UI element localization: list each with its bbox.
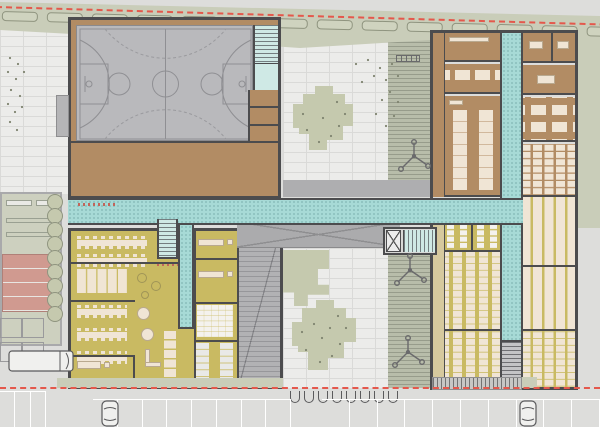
admin-desk-b — [557, 41, 569, 49]
parking-stall — [405, 400, 433, 427]
admin-room-1-divider — [551, 33, 553, 63]
planting-cluster-east — [346, 56, 404, 136]
planter-circle-1 — [137, 273, 147, 283]
site-plan — [0, 0, 600, 427]
parking-lot-right — [322, 399, 600, 427]
ladder-bench — [396, 55, 420, 62]
dining-long-table — [77, 328, 127, 341]
planter-circle-3 — [141, 291, 149, 299]
tripod-climber-upper — [396, 138, 432, 174]
gym-block — [68, 17, 281, 199]
classroom-west-1 — [445, 252, 500, 331]
gym-hall-south-wall — [71, 141, 278, 143]
gym-court — [76, 25, 253, 141]
tree-northwest-cluster — [2, 52, 36, 138]
round-table-2 — [141, 328, 154, 341]
office-desk-2 — [198, 271, 224, 278]
gym-equipment-box — [56, 95, 69, 137]
staff-room-large — [445, 96, 500, 197]
admin-desk-a — [529, 41, 543, 49]
parking-stall — [143, 400, 168, 427]
storage-counter — [449, 37, 489, 42]
bus — [8, 349, 74, 373]
southwest-office-desk — [77, 361, 101, 369]
parking-stall — [192, 400, 217, 427]
round-table-1 — [137, 307, 150, 320]
canteen-corridor — [178, 225, 194, 329]
parking-lot-left — [93, 399, 291, 427]
parking-stall — [544, 400, 572, 427]
office-desk-1 — [198, 239, 224, 246]
car-right-lot — [518, 400, 538, 427]
admin-room-1 — [523, 33, 575, 63]
training-room-east — [523, 144, 575, 197]
parking-lot-far-left — [0, 391, 46, 427]
parking-stall — [118, 400, 143, 427]
moto-stalls — [0, 318, 44, 338]
corridor-entry-dots — [78, 203, 118, 206]
dining-long-table — [77, 305, 127, 318]
wall-office-bl-h — [71, 355, 135, 357]
southwest-office-cabinet — [104, 362, 110, 368]
planter-circle-2 — [151, 281, 161, 291]
main-corridor — [68, 198, 523, 225]
parking-stall — [266, 400, 291, 427]
bike-rack-u — [304, 391, 314, 403]
running-track — [2, 254, 52, 312]
canteen-toilets — [197, 305, 233, 337]
gym-stair — [253, 25, 278, 63]
classroom-east-1 — [523, 197, 575, 267]
parking-stall — [489, 400, 517, 427]
hedge-capsule — [2, 11, 38, 22]
parking-stall — [0, 392, 15, 427]
hedge-bubble — [47, 306, 63, 322]
parking-stall — [217, 400, 242, 427]
gym-stair-lobby — [253, 63, 278, 90]
hedge-bubble-column — [47, 196, 63, 322]
staff-meeting-small — [445, 64, 500, 94]
meeting-room-east — [523, 97, 575, 142]
wall-small-rooms-h2 — [194, 302, 237, 304]
tree-lower-courtyard — [292, 300, 356, 376]
banquet-long-table — [77, 254, 147, 267]
west-service-strip-brown — [433, 33, 445, 197]
canteen-office-desk-row — [77, 269, 127, 293]
wall-small-rooms-col — [194, 231, 196, 386]
tripod-climber-lower — [390, 334, 426, 370]
wall-office-south — [71, 300, 135, 302]
elevator — [386, 230, 401, 252]
car-left-lot — [100, 400, 120, 427]
hedge-capsule — [362, 20, 398, 31]
basketball-court-markings — [77, 26, 254, 142]
parking-stall — [15, 392, 30, 427]
parking-stall — [242, 400, 267, 427]
office-cabinet-2 — [227, 271, 233, 277]
changing-partition-2 — [250, 124, 278, 126]
lounge-couch-horizontal — [145, 362, 161, 367]
bike-rack-u — [290, 391, 300, 403]
hedge-capsule — [587, 26, 600, 37]
parking-stall — [167, 400, 192, 427]
parking-stall — [461, 400, 489, 427]
ramp-hall-strip — [237, 231, 280, 386]
staff-work-tables — [453, 110, 493, 190]
office-cabinet-1 — [227, 239, 233, 245]
gym-changing-rooms — [248, 90, 278, 141]
walk-band-upper-courtyard — [283, 180, 430, 197]
changing-partition-1 — [250, 106, 278, 108]
parking-stall — [378, 400, 406, 427]
parking-stall — [322, 400, 350, 427]
cafe-small-tables — [164, 331, 182, 377]
parking-stall — [433, 400, 461, 427]
entry-canopy — [237, 222, 400, 248]
landscape-east-strip — [578, 26, 600, 228]
wall-banquet-south — [71, 262, 178, 264]
toilet-fixtures-left — [447, 224, 467, 248]
hedge-capsule — [317, 19, 353, 30]
wall-small-rooms-h1 — [194, 258, 237, 260]
boundary-line-south — [0, 387, 600, 389]
parking-stall — [31, 392, 46, 427]
canteen-stair — [157, 219, 178, 259]
staff-room-storage — [445, 33, 500, 62]
field-goal-box-1 — [6, 200, 32, 206]
admin-room-2-table — [537, 75, 555, 84]
classroom-east-2 — [523, 267, 575, 331]
banquet-long-table — [77, 236, 147, 249]
admin-room-2 — [523, 65, 575, 95]
wall-small-rooms-h3 — [194, 340, 237, 342]
parking-stall — [572, 400, 600, 427]
staff-couch — [449, 100, 463, 105]
core-stair — [403, 230, 435, 252]
parking-stall — [350, 400, 378, 427]
kitchen-servery-counters — [196, 343, 233, 383]
tripod-climber-mid — [392, 252, 428, 288]
core-junction — [383, 227, 437, 255]
toilet-fixtures-right — [477, 224, 497, 248]
